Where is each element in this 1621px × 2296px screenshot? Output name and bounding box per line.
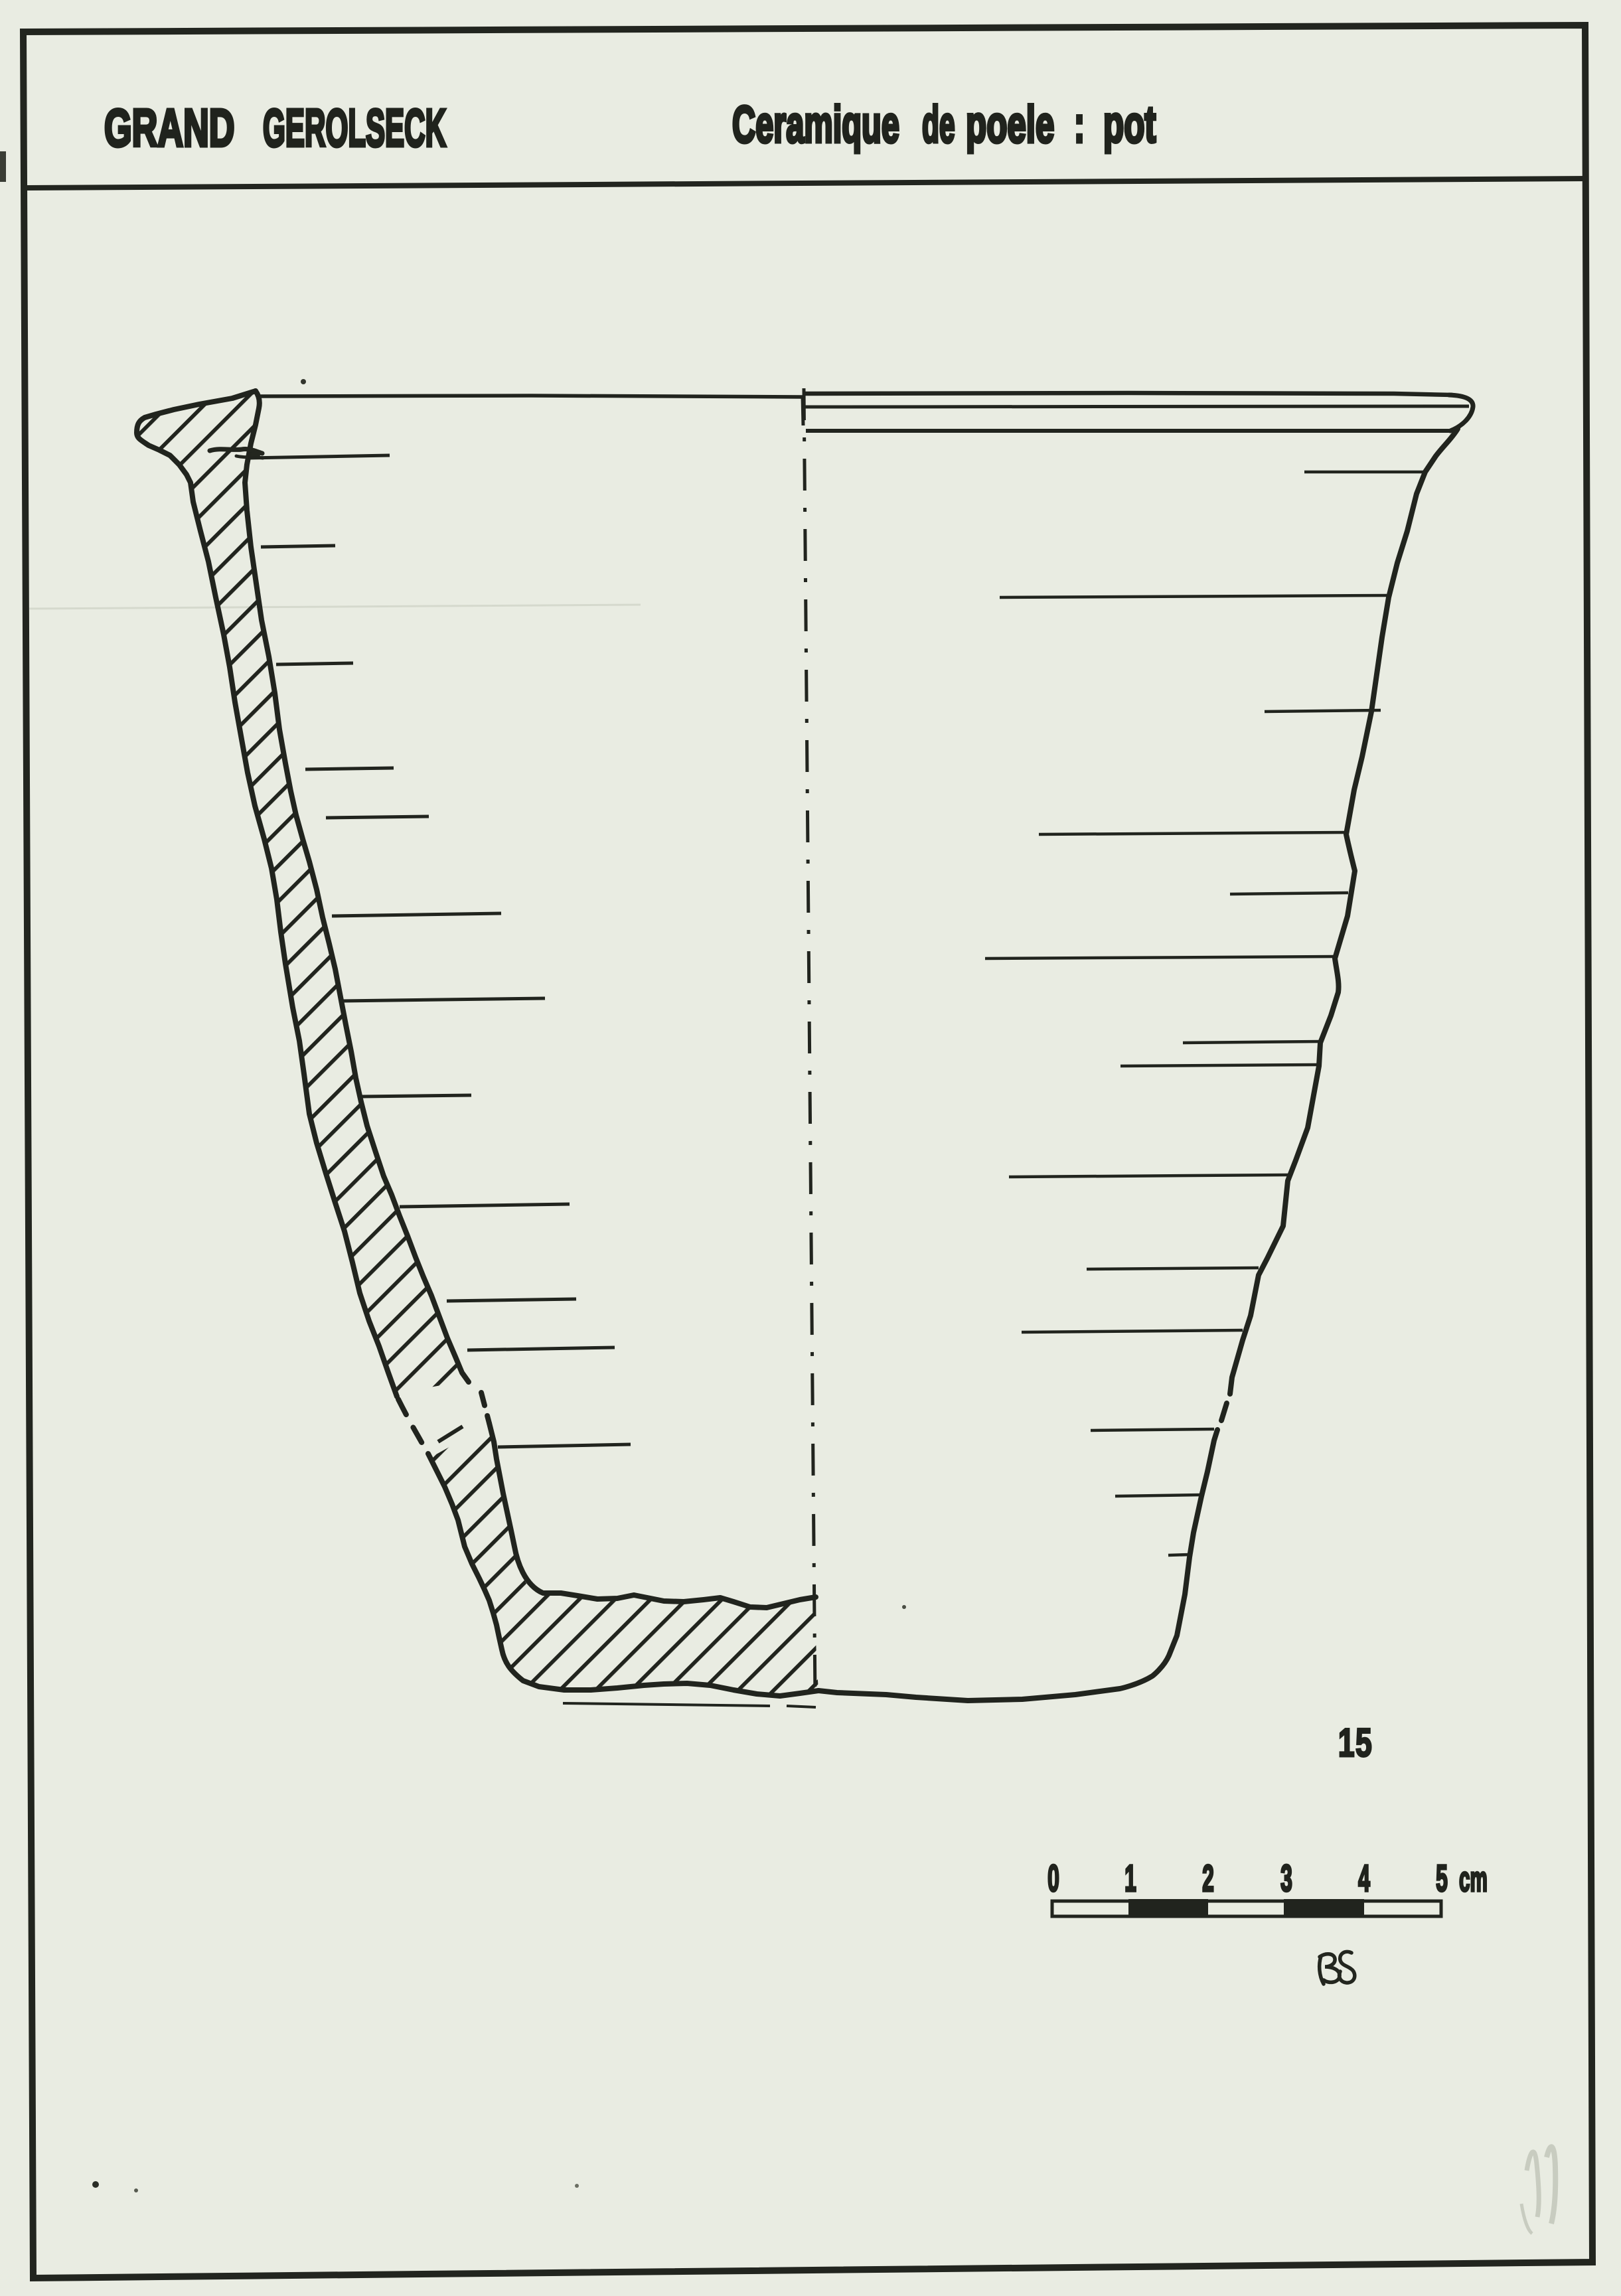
svg-text:5: 5 [1436, 1857, 1448, 1899]
svg-text:pot: pot [1103, 95, 1156, 153]
svg-text:cm: cm [1459, 1860, 1488, 1899]
svg-text:GEROLSECK: GEROLSECK [263, 98, 446, 157]
svg-text:poele: poele [966, 95, 1054, 153]
svg-text:4: 4 [1358, 1857, 1370, 1899]
svg-text:3: 3 [1280, 1857, 1292, 1899]
svg-text:de: de [922, 96, 955, 153]
svg-text::: : [1074, 95, 1085, 153]
svg-text:1: 1 [1124, 1857, 1136, 1899]
svg-text:15: 15 [1338, 1721, 1373, 1766]
svg-text:0: 0 [1047, 1857, 1059, 1899]
svg-text:2: 2 [1202, 1857, 1214, 1899]
svg-text:GRAND: GRAND [104, 98, 234, 157]
svg-text:Ceramique: Ceramique [732, 95, 899, 153]
